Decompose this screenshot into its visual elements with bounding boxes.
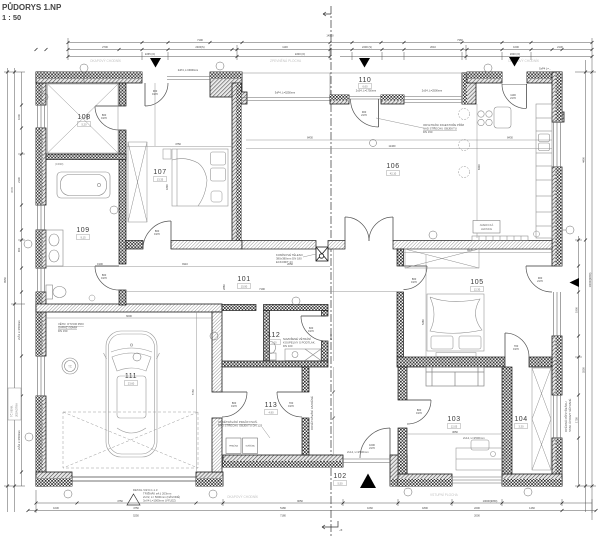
svg-text:1030: 1030	[53, 506, 59, 510]
svg-text:DN 100: DN 100	[283, 344, 293, 348]
svg-text:8430: 8430	[507, 136, 513, 140]
svg-text:2xS4, L=1750mm: 2xS4, L=1750mm	[356, 89, 376, 93]
svg-text:11460: 11460	[388, 144, 396, 148]
svg-text:109: 109	[76, 227, 89, 234]
svg-text:113: 113	[265, 402, 278, 409]
svg-text:13,35: 13,35	[157, 178, 164, 182]
svg-text:OKAPOVÝ CHODNÍK: OKAPOVÝ CHODNÍK	[227, 495, 259, 499]
svg-text:PŮDORYS 1.NP: PŮDORYS 1.NP	[2, 2, 62, 12]
svg-text:SUŠIČKA: SUŠIČKA	[245, 445, 255, 448]
svg-text:1000: 1000	[17, 114, 21, 120]
svg-text:STAV. ÚPRAVY VĚTRANÉ: STAV. ÚPRAVY VĚTRANÉ	[567, 398, 572, 432]
svg-text:ODVĚTRÁVÁNÍ ZAZDĚNÉ: ODVĚTRÁVÁNÍ ZAZDĚNÉ	[309, 396, 314, 430]
svg-text:(CD30): (CD30)	[55, 162, 63, 166]
svg-text:2200 (O): 2200 (O)	[295, 52, 305, 56]
svg-text:111: 111	[125, 373, 137, 380]
svg-text:5180: 5180	[280, 506, 286, 510]
svg-text:5750: 5750	[191, 389, 195, 395]
svg-text:900: 900	[17, 247, 21, 252]
svg-text:23,60: 23,60	[128, 382, 135, 386]
svg-text:9950: 9950	[3, 277, 7, 283]
svg-text:8430: 8430	[307, 136, 313, 140]
svg-text:PRAČKA: PRAČKA	[229, 445, 238, 448]
svg-text:2400: 2400	[85, 114, 89, 120]
svg-text:2x14, L=2500mm: 2x14, L=2500mm	[463, 436, 485, 440]
svg-text:10000(9050): 10000(9050)	[483, 499, 498, 503]
svg-text:4750: 4750	[133, 506, 139, 510]
svg-text:14500: 14500	[326, 34, 334, 38]
svg-text:3650: 3650	[452, 430, 458, 434]
svg-text:3xP4, L=5250mm: 3xP4, L=5250mm	[275, 91, 295, 95]
svg-text:5280: 5280	[421, 319, 425, 325]
svg-text:OKAPOVÝ CHODNÍK: OKAPOVÝ CHODNÍK	[90, 59, 122, 63]
svg-text:3,30: 3,30	[518, 425, 524, 429]
svg-text:1890: 1890	[165, 184, 169, 190]
svg-text:2170: 2170	[510, 96, 516, 100]
svg-text:1970: 1970	[154, 232, 160, 236]
svg-text:7360: 7360	[457, 38, 463, 42]
svg-text:NAD STŘECHU OBJEKTU DN 125: NAD STŘECHU OBJEKTU DN 125	[218, 423, 263, 428]
svg-text:2200: 2200	[474, 506, 480, 510]
svg-text:5250: 5250	[133, 514, 139, 518]
svg-text:5550: 5550	[582, 367, 586, 373]
svg-text:4770: 4770	[10, 187, 14, 193]
svg-text:102: 102	[333, 473, 346, 480]
svg-text:2000: 2000	[474, 514, 480, 518]
svg-text:106: 106	[386, 163, 399, 170]
svg-text:9050: 9050	[297, 499, 303, 503]
svg-text:1970: 1970	[513, 347, 519, 351]
svg-text:1970: 1970	[101, 116, 107, 120]
svg-text:7190: 7190	[197, 38, 203, 42]
svg-text:4750: 4750	[175, 142, 181, 146]
svg-text:4400: 4400	[582, 157, 586, 163]
svg-text:VSTUPNÍ PLOCHA: VSTUPNÍ PLOCHA	[430, 493, 459, 497]
svg-text:1 : 50: 1 : 50	[2, 13, 21, 22]
svg-text:2170: 2170	[369, 446, 375, 450]
svg-text:ECKOMIT 2/): ECKOMIT 2/)	[276, 260, 293, 264]
svg-text:9,15: 9,15	[80, 236, 86, 240]
svg-text:LEDNICE: LEDNICE	[481, 227, 493, 231]
svg-text:2265 (O): 2265 (O)	[145, 52, 155, 56]
svg-text:ZPEVNĚNÁ PLOCHA: ZPEVNĚNÁ PLOCHA	[270, 58, 302, 63]
svg-text:107: 107	[153, 169, 166, 176]
svg-text:12,05: 12,05	[451, 425, 458, 429]
svg-text:1460: 1460	[529, 506, 535, 510]
svg-text:2000 (O): 2000 (O)	[510, 52, 520, 56]
svg-text:DN 150: DN 150	[58, 329, 68, 333]
svg-text:2200 (S): 2200 (S)	[362, 45, 372, 49]
svg-text:1060: 1060	[367, 506, 373, 510]
svg-text:1000: 1000	[513, 45, 519, 49]
svg-text:5,50: 5,50	[337, 482, 343, 486]
svg-text:2010: 2010	[430, 45, 436, 49]
svg-text:1970: 1970	[288, 404, 294, 408]
svg-text:AMERICKÁ: AMERICKÁ	[480, 223, 494, 227]
svg-text:1900: 1900	[97, 262, 103, 266]
svg-text:SxP4 L=...: SxP4 L=...	[539, 67, 551, 71]
svg-text:2860: 2860	[222, 284, 226, 290]
svg-text:8110: 8110	[182, 262, 188, 266]
svg-text:1970: 1970	[416, 411, 422, 415]
svg-text:1970: 1970	[411, 280, 417, 284]
svg-text:110: 110	[359, 77, 372, 84]
svg-text:12,30: 12,30	[474, 288, 481, 292]
svg-text:5,20: 5,20	[81, 123, 87, 127]
svg-text:2170: 2170	[361, 113, 367, 117]
svg-text:101: 101	[237, 276, 250, 283]
svg-text:1970: 1970	[101, 276, 107, 280]
svg-text:DN 150: DN 150	[423, 130, 433, 134]
svg-text:7190: 7190	[259, 287, 265, 291]
svg-text:2170: 2170	[537, 279, 543, 283]
svg-text:6000: 6000	[126, 314, 132, 318]
svg-text:2130: 2130	[557, 45, 563, 49]
svg-text:1900: 1900	[575, 307, 579, 313]
svg-text:2x14, L=2500mm: 2x14, L=2500mm	[347, 450, 369, 454]
svg-text:1970: 1970	[308, 329, 314, 333]
svg-text:4750: 4750	[117, 499, 123, 503]
svg-text:1130: 1130	[282, 45, 288, 49]
svg-text:2xP4, L=3000mm: 2xP4, L=3000mm	[178, 68, 198, 72]
svg-text:JEDNOTKA: JEDNOTKA	[15, 403, 19, 417]
svg-text:6,60: 6,60	[362, 85, 368, 89]
svg-text:112: 112	[268, 332, 281, 339]
svg-text:10000(9050): 10000(9050)	[588, 273, 592, 288]
svg-text:2130: 2130	[17, 177, 21, 183]
svg-text:4,90: 4,90	[268, 411, 274, 415]
svg-text:-x: -x	[339, 527, 342, 532]
svg-text:8430: 8430	[477, 164, 481, 170]
svg-text:103: 103	[447, 416, 460, 423]
svg-text:3xV4 L=1000mm (VÝLEZ): 3xV4 L=1000mm (VÝLEZ)	[143, 499, 176, 503]
svg-text:42,10: 42,10	[390, 172, 397, 176]
svg-text:2400(S): 2400(S)	[195, 45, 204, 49]
svg-text:1750: 1750	[575, 417, 579, 423]
svg-text:7180: 7180	[280, 514, 286, 518]
svg-text:1970: 1970	[231, 404, 237, 408]
svg-text:15,90: 15,90	[241, 285, 248, 289]
svg-text:2000: 2000	[329, 334, 333, 340]
svg-text:1970: 1970	[152, 92, 158, 96]
svg-text:2xS4, L=2500mm: 2xS4, L=2500mm	[422, 89, 442, 93]
svg-text:104: 104	[514, 416, 527, 423]
svg-text:1800: 1800	[422, 506, 428, 510]
svg-text:2700: 2700	[102, 45, 108, 49]
svg-text:105: 105	[470, 279, 483, 286]
